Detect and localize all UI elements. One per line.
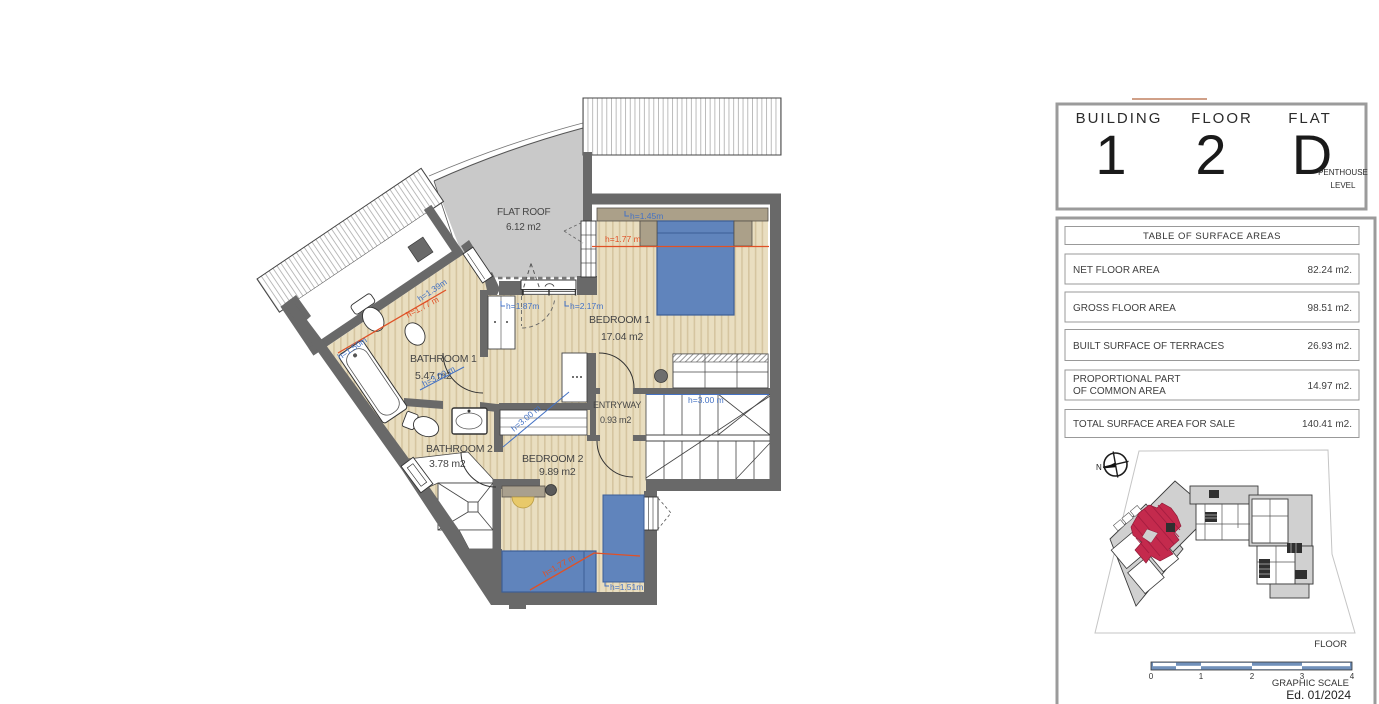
svg-text:GROSS FLOOR AREA: GROSS FLOOR AREA [1073,303,1176,314]
svg-text:NET FLOOR AREA: NET FLOOR AREA [1073,265,1160,276]
svg-text:6.12 m2: 6.12 m2 [506,222,541,233]
svg-text:BUILT SURFACE OF TERRACES: BUILT SURFACE OF TERRACES [1073,341,1224,352]
svg-text:2: 2 [1250,672,1255,681]
svg-text:TABLE OF SURFACE AREAS: TABLE OF SURFACE AREAS [1143,231,1281,242]
svg-text:BEDROOM 1: BEDROOM 1 [589,314,651,326]
svg-text:3.78 m2: 3.78 m2 [429,458,466,470]
svg-text:PENTHOUSE: PENTHOUSE [1318,168,1368,177]
svg-text:26.93 m2.: 26.93 m2. [1308,341,1352,352]
svg-text:1: 1 [1199,672,1204,681]
svg-text:LEVEL: LEVEL [1331,181,1356,190]
svg-text:h=1.87m: h=1.87m [506,301,539,311]
svg-text:h=1.51m: h=1.51m [610,582,643,592]
svg-text:17.04 m2: 17.04 m2 [601,331,644,343]
svg-text:0: 0 [1149,672,1154,681]
svg-text:Ed. 01/2024: Ed. 01/2024 [1286,688,1351,702]
svg-text:98.51 m2.: 98.51 m2. [1308,303,1352,314]
svg-text:FLAT ROOF: FLAT ROOF [497,207,550,218]
svg-text:1: 1 [1095,123,1126,186]
svg-text:ENTRYWAY: ENTRYWAY [593,400,641,410]
svg-text:0.93 m2: 0.93 m2 [600,415,631,425]
svg-text:OF COMMON AREA: OF COMMON AREA [1073,386,1166,397]
svg-text:h=1.45m: h=1.45m [630,211,663,221]
svg-text:2: 2 [1195,123,1226,186]
svg-text:140.41 m2.: 140.41 m2. [1302,419,1352,430]
svg-text:PROPORTIONAL PART: PROPORTIONAL PART [1073,374,1180,385]
svg-text:h=2.17m: h=2.17m [570,301,603,311]
svg-text:BATHROOM 2: BATHROOM 2 [426,443,493,455]
svg-text:14.97 m2.: 14.97 m2. [1308,381,1352,392]
svg-text:TOTAL SURFACE AREA FOR SALE: TOTAL SURFACE AREA FOR SALE [1073,419,1235,430]
svg-text:4: 4 [1350,672,1355,681]
svg-text:h=1.77 m: h=1.77 m [605,234,641,244]
svg-text:FLOOR: FLOOR [1314,639,1347,650]
svg-text:9.89 m2: 9.89 m2 [539,466,576,478]
svg-text:82.24 m2.: 82.24 m2. [1308,265,1352,276]
svg-text:BEDROOM 2: BEDROOM 2 [522,453,584,465]
svg-text:h=3.00 m: h=3.00 m [688,395,724,405]
svg-text:N: N [1096,463,1102,472]
